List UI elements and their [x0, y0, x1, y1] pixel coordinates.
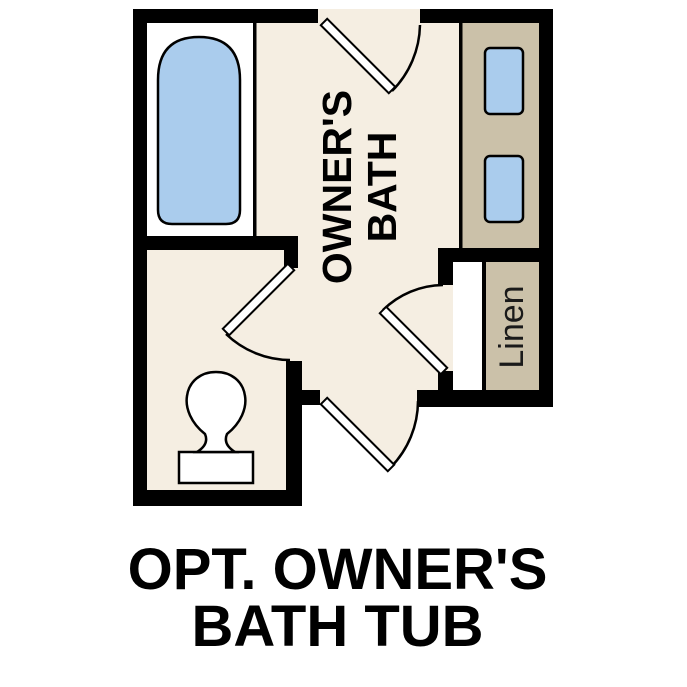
- room-label-bath: BATH: [359, 132, 405, 243]
- linen-closet-floor: [453, 262, 482, 392]
- plan-caption-line2: BATH TUB: [0, 598, 681, 655]
- wall-top-left: [133, 9, 318, 23]
- toilet-tank: [179, 452, 253, 483]
- plan-caption: OPT. OWNER'S BATH TUB: [0, 541, 681, 655]
- wall-bath-bottom-right: [417, 390, 553, 407]
- tub-alcove-edge-line: [253, 23, 257, 236]
- floor-plan-page: OWNER'S BATH Linen OPT. OWNER'S BATH TUB: [0, 0, 687, 687]
- wall-wc-right: [286, 361, 302, 506]
- linen-closet-divider-line: [482, 262, 486, 392]
- wall-vanity-bottom: [438, 248, 553, 262]
- wall-tub-wc-divider: [133, 236, 298, 250]
- vanity-counter-edge-line: [459, 23, 463, 249]
- plan-caption-line1: OPT. OWNER'S: [0, 541, 681, 598]
- wall-linen-jamb-top: [438, 262, 453, 285]
- wall-left: [133, 9, 147, 506]
- linen-closet-label: Linen: [493, 285, 531, 368]
- wall-top-right: [420, 9, 553, 23]
- vanity-sink-bottom: [485, 156, 523, 222]
- vanity-sink-top: [485, 48, 523, 114]
- wall-wc-bottom: [133, 490, 302, 506]
- bathtub: [158, 37, 240, 224]
- floor-plan: OWNER'S BATH Linen: [0, 0, 687, 525]
- wall-bath-bottom-left: [286, 390, 320, 405]
- room-label-owners: OWNER'S: [314, 90, 360, 284]
- wall-right: [539, 9, 553, 407]
